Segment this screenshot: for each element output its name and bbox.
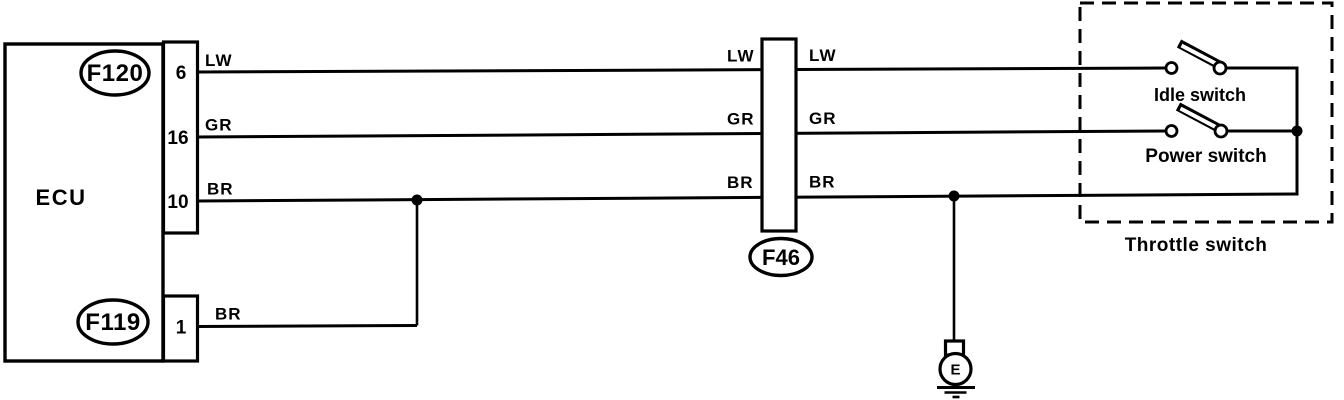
connector-f120-label: F120 [87,60,144,87]
ground-symbol: E [937,341,975,397]
junction-dot-ground [949,191,960,202]
power-switch-label: Power switch [1145,146,1266,167]
connector-f46-label: F46 [762,245,800,270]
wire-br [197,194,1297,201]
wire-label-br-f46-left: BR [727,173,754,192]
power-switch-contact-right [1215,125,1227,137]
idle-switch-contact-right [1214,62,1226,74]
wire-label-lw-f46-right: LW [809,46,837,65]
connector-f119-label: F119 [85,309,140,336]
wire-label-br-ecu: BR [207,180,234,199]
power-switch-lever-core [1181,109,1220,130]
wire-label-lw-f46-left: LW [727,47,755,66]
throttle-switch-label: Throttle switch [1125,235,1268,256]
wire-label-gr-f46-right: GR [809,109,837,128]
junction-dot-pin1-branch [412,195,423,206]
idle-switch: Idle switch [1154,44,1246,106]
wire-label-lw-ecu: LW [205,51,233,70]
pin-number-1: 1 [176,318,187,339]
power-switch-contact-left [1166,126,1177,137]
idle-switch-contact-left [1166,63,1177,74]
wire-label-br-f46-right: BR [809,173,836,192]
wire-label-gr-f46-left: GR [727,110,755,129]
throttle-switch-dashed-box [1080,3,1332,222]
wire-gr [197,131,1166,137]
pin-number-16: 16 [167,128,188,149]
wiring-diagram: ECU F120 F119 6 16 10 1 LW GR BR BR F46 … [0,0,1344,400]
wire-br-pin1 [197,326,417,327]
connector-f46-box [762,39,796,231]
pin-number-10: 10 [167,192,188,213]
wire-label-br-pin1: BR [215,305,242,324]
ground-label: E [950,362,960,379]
junction-dot-power-switch [1292,126,1303,137]
wire-label-gr-ecu: GR [205,116,233,135]
power-switch: Power switch [1145,107,1266,168]
idle-switch-label: Idle switch [1154,85,1246,105]
pin-number-6: 6 [176,63,187,84]
ecu-label: ECU [36,185,87,210]
wiring-diagram-page: ECU F120 F119 6 16 10 1 LW GR BR BR F46 … [0,0,1344,400]
wire-lw [197,68,1166,72]
